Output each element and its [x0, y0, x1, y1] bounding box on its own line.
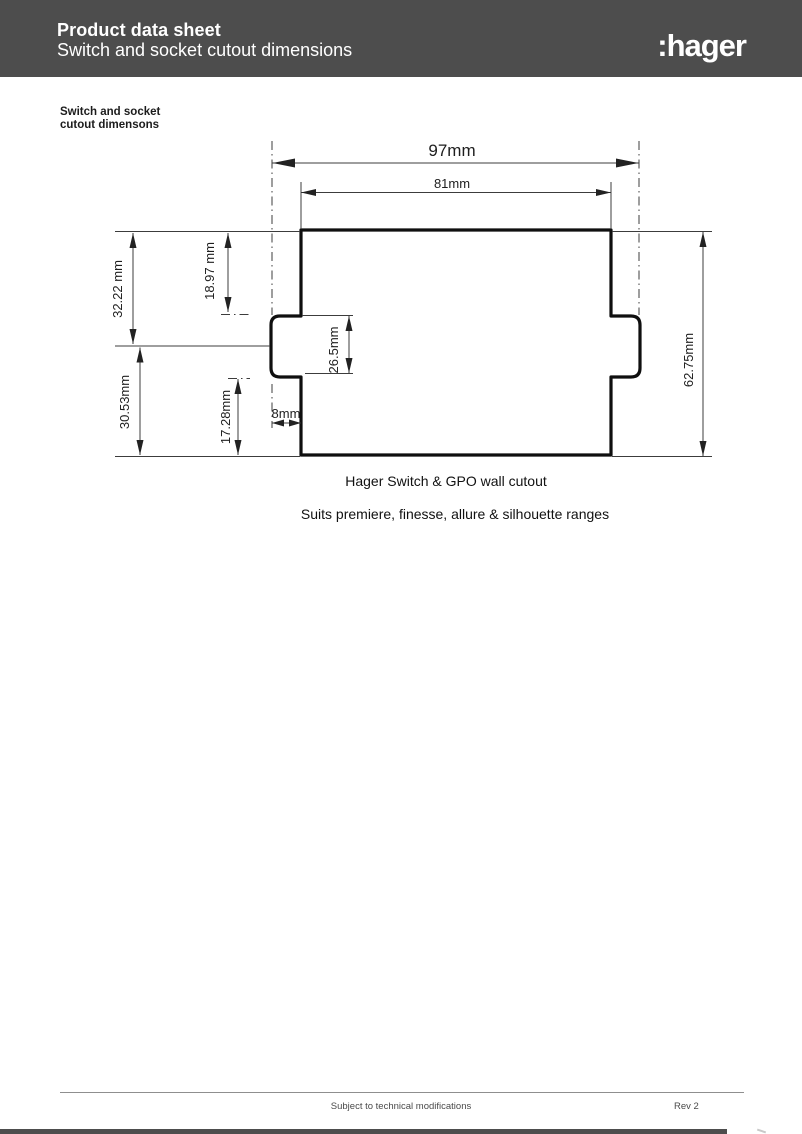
diagram-caption: Hager Switch & GPO wall cutout: [345, 473, 547, 489]
dim-upper-left-inner-label: 18.97 mm: [202, 242, 217, 300]
dimension-arrows: [130, 159, 707, 457]
bottom-edge-bar: [0, 1129, 727, 1134]
dim-notch-height-label: 26.5mm: [326, 327, 341, 374]
bottom-edge-mark: [757, 1129, 766, 1134]
dim-lower-left-outer-label: 30.53mm: [117, 375, 132, 429]
dim-outer-width-label: 97mm: [428, 141, 475, 160]
dim-total-height-label: 62.75mm: [681, 333, 696, 387]
footer-note: Subject to technical modifications: [331, 1101, 471, 1112]
dim-upper-left-outer-label: 32.22 mm: [110, 260, 125, 318]
footer-revision: Rev 2: [674, 1101, 699, 1112]
dim-notch-depth-label: 8mm: [272, 406, 301, 421]
diagram-subcaption: Suits premiere, finesse, allure & silhou…: [301, 506, 609, 522]
footer-divider: [60, 1092, 744, 1093]
dim-inner-width-label: 81mm: [434, 176, 470, 191]
dim-lower-left-inner-label: 17.28mm: [218, 390, 233, 444]
